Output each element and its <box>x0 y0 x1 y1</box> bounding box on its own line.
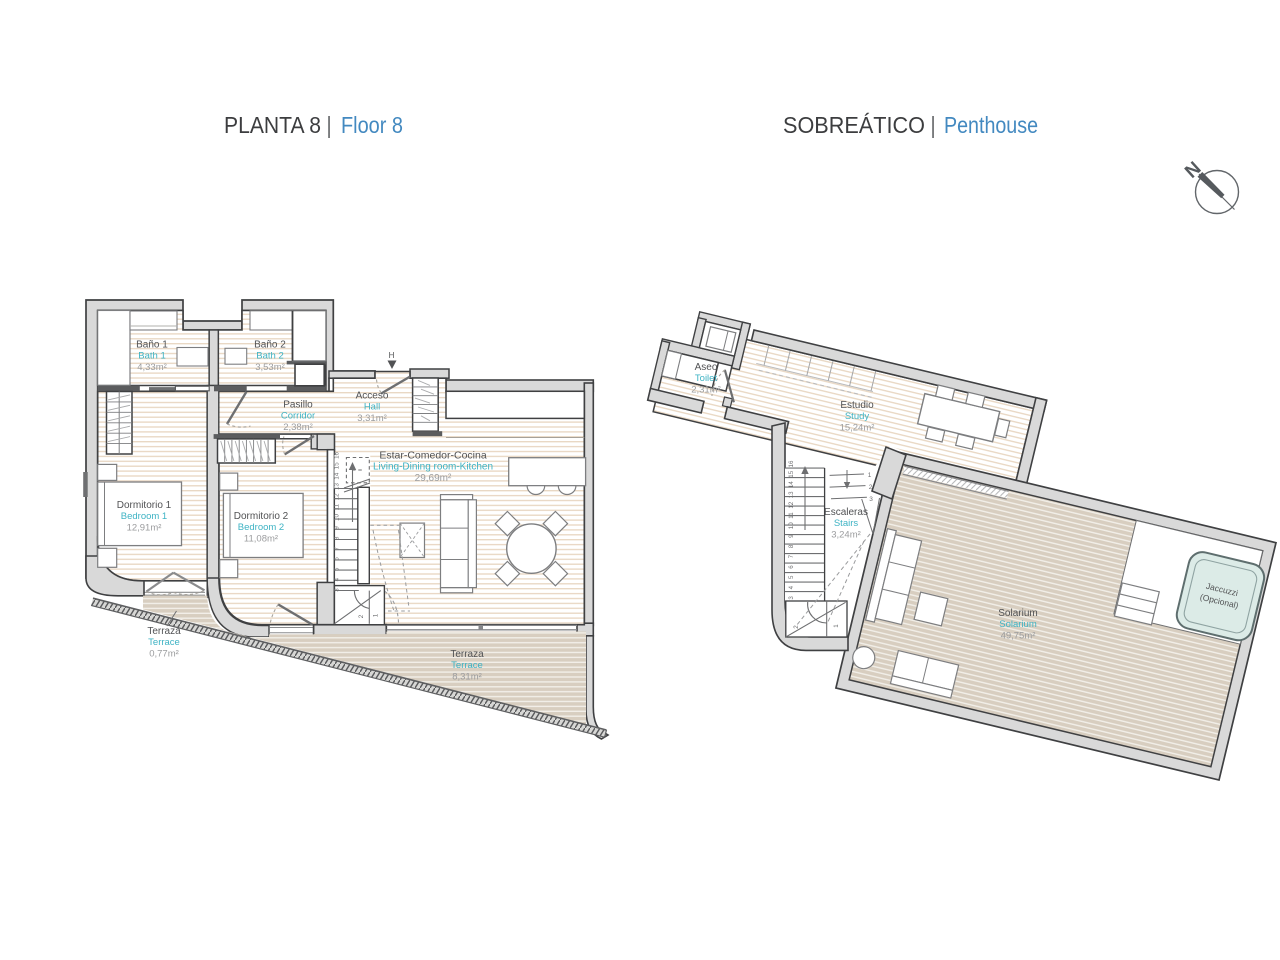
svg-text:5: 5 <box>334 567 341 571</box>
svg-text:Toilet: Toilet <box>695 373 718 384</box>
svg-text:Bedroom 1: Bedroom 1 <box>121 511 167 522</box>
svg-text:9: 9 <box>788 534 795 538</box>
svg-text:3,53m²: 3,53m² <box>255 362 285 373</box>
svg-text:Hall: Hall <box>364 402 380 413</box>
svg-text:4: 4 <box>788 585 795 589</box>
svg-text:Terrace: Terrace <box>148 637 180 648</box>
svg-text:Penthouse: Penthouse <box>944 112 1038 138</box>
svg-text:12: 12 <box>334 493 341 500</box>
svg-text:PLANTA 8: PLANTA 8 <box>224 112 321 138</box>
svg-text:12,91m²: 12,91m² <box>127 522 162 533</box>
svg-text:1: 1 <box>833 624 840 628</box>
svg-text:2: 2 <box>793 625 800 629</box>
svg-text:8,31m²: 8,31m² <box>452 671 482 682</box>
svg-text:29,69m²: 29,69m² <box>415 473 452 484</box>
svg-text:3,24m²: 3,24m² <box>831 529 861 540</box>
svg-text:3: 3 <box>334 588 341 592</box>
svg-text:Study: Study <box>845 411 870 422</box>
svg-text:2: 2 <box>358 614 365 618</box>
svg-text:Estar-Comedor-Cocina: Estar-Comedor-Cocina <box>379 450 487 462</box>
svg-text:6: 6 <box>334 557 341 561</box>
svg-text:10: 10 <box>788 522 795 529</box>
svg-text:12: 12 <box>788 501 795 508</box>
svg-text:Corridor: Corridor <box>281 411 315 422</box>
svg-text:5: 5 <box>788 575 795 579</box>
svg-text:3,31m²: 3,31m² <box>357 413 387 424</box>
svg-text:4: 4 <box>333 577 340 581</box>
svg-text:7: 7 <box>788 554 795 558</box>
svg-text:Bedroom 2: Bedroom 2 <box>238 522 284 533</box>
svg-text:Bath 2: Bath 2 <box>256 351 283 362</box>
svg-text:11: 11 <box>334 503 341 510</box>
svg-text:Dormitorio 1: Dormitorio 1 <box>117 500 172 511</box>
svg-text:2: 2 <box>869 484 873 491</box>
svg-text:9: 9 <box>334 526 341 530</box>
svg-text:2,31m²: 2,31m² <box>691 384 721 395</box>
svg-text:Stairs: Stairs <box>834 518 859 529</box>
svg-text:13: 13 <box>334 483 341 490</box>
svg-text:1: 1 <box>868 472 872 479</box>
svg-text:Escaleras: Escaleras <box>824 507 868 518</box>
svg-text:Baño 1: Baño 1 <box>136 340 168 351</box>
svg-text:SOBREÁTICO: SOBREÁTICO <box>783 112 925 138</box>
svg-text:|: | <box>930 112 936 138</box>
svg-text:0,77m²: 0,77m² <box>149 648 179 659</box>
svg-text:1: 1 <box>373 613 380 617</box>
svg-text:8: 8 <box>788 544 795 548</box>
svg-text:16: 16 <box>334 451 341 458</box>
svg-text:4,33m²: 4,33m² <box>137 362 167 373</box>
svg-text:Floor 8: Floor 8 <box>341 112 403 138</box>
svg-text:7: 7 <box>334 546 341 550</box>
svg-text:Baño 2: Baño 2 <box>254 340 286 351</box>
svg-text:49,75m²: 49,75m² <box>1001 630 1036 641</box>
svg-text:2,38m²: 2,38m² <box>283 422 313 433</box>
svg-text:15: 15 <box>788 470 795 477</box>
svg-text:H: H <box>389 351 395 360</box>
svg-text:10: 10 <box>333 514 340 521</box>
svg-text:Solarium: Solarium <box>999 619 1037 630</box>
svg-text:6: 6 <box>788 565 795 569</box>
svg-text:3: 3 <box>788 596 795 600</box>
svg-text:8: 8 <box>333 536 340 540</box>
svg-text:Acceso: Acceso <box>356 391 389 402</box>
svg-text:Dormitorio 2: Dormitorio 2 <box>234 511 289 522</box>
svg-text:15,24m²: 15,24m² <box>840 422 875 433</box>
svg-text:Solarium: Solarium <box>998 608 1037 619</box>
svg-text:Terraza: Terraza <box>450 649 484 660</box>
svg-text:11: 11 <box>788 512 795 519</box>
svg-text:11,08m²: 11,08m² <box>244 533 278 544</box>
svg-text:Living-Dining room-Kitchen: Living-Dining room-Kitchen <box>373 462 493 473</box>
svg-text:3: 3 <box>869 496 873 503</box>
svg-text:16: 16 <box>788 460 795 467</box>
svg-text:14: 14 <box>333 472 340 479</box>
svg-text:13: 13 <box>788 491 795 498</box>
svg-text:Pasillo: Pasillo <box>283 400 313 411</box>
svg-text:Aseo: Aseo <box>695 362 718 373</box>
svg-text:|: | <box>326 112 332 138</box>
svg-text:14: 14 <box>788 481 795 488</box>
svg-text:Terraza: Terraza <box>147 626 181 637</box>
svg-text:Estudio: Estudio <box>840 400 874 411</box>
svg-text:Bath 1: Bath 1 <box>138 351 165 362</box>
svg-text:Terrace: Terrace <box>451 660 483 671</box>
svg-text:15: 15 <box>334 462 341 469</box>
